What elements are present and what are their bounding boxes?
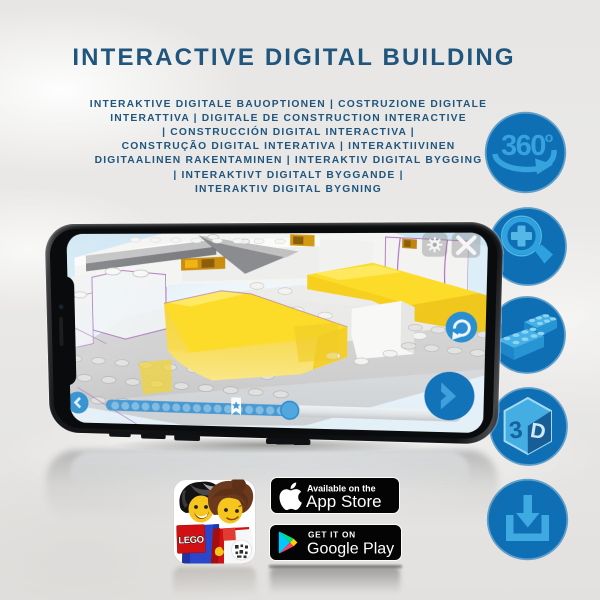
svg-text:o: o <box>545 129 554 145</box>
svg-text:GET IT ON: GET IT ON <box>308 529 356 539</box>
svg-text:App Store: App Store <box>306 492 382 511</box>
svg-text:Google Play: Google Play <box>307 540 394 557</box>
svg-text:LEGO: LEGO <box>178 535 204 547</box>
svg-text:360: 360 <box>501 130 545 162</box>
